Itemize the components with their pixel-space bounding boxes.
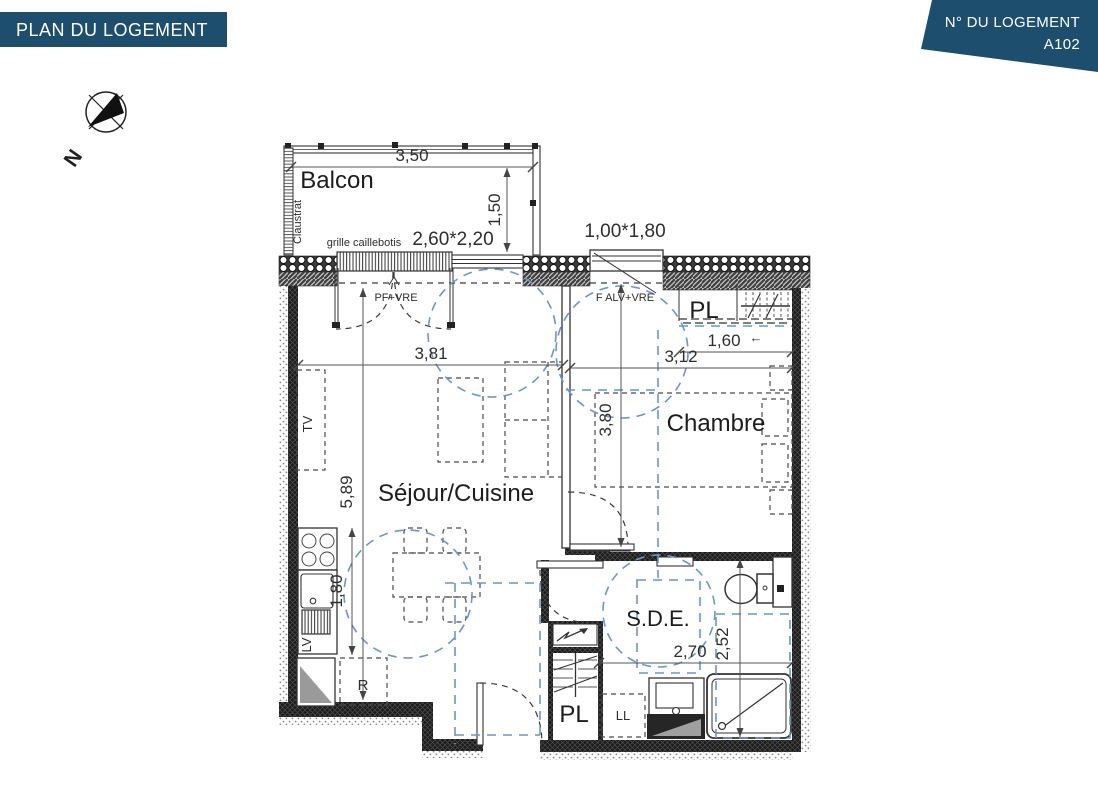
label-fridge: R [358,677,369,694]
label-grille-caillebotis: grille caillebotis [327,237,402,249]
label-window-balcony-size: 2,60*2,20 [412,229,493,250]
wall-bathroom-top [595,552,793,561]
floor-plan-svg: Balcon Séjour/Cuisine Chambre S.D.E. PL … [0,0,1098,800]
wall-top-honeycomb-left [279,256,337,272]
label-claustra: Claustrat [292,200,304,244]
banner-right-line2: A102 [1044,36,1080,53]
kitchen-faucet [310,598,316,604]
chair [404,597,427,622]
wall-bottom-right [540,740,793,752]
dining-table [393,553,480,597]
label-tv: TV [300,415,315,432]
dim-living-length [360,288,367,700]
toilet [725,574,773,604]
wall-bedroom-partition [562,286,570,548]
pillow [762,444,788,482]
wall-right-insulation [801,288,811,752]
duct-right-wall [773,557,792,607]
dim-bedroom-length [618,284,625,547]
label-pf-vre: PF+VRE [374,292,417,304]
pillow [762,399,788,436]
room-label-pl-bottom: PL [559,701,588,728]
nightstand [770,490,792,514]
chair [404,528,427,553]
compass-north-label: N [60,145,88,171]
room-label-pl-entry: PL [689,297,718,324]
dim-label-bedroom-length: 3,80 [596,403,615,436]
nightstand [770,366,792,390]
room-label-sejour: Séjour/Cuisine [378,480,534,507]
bed [595,393,792,487]
label-f-alv-vre: F ALV+VRE [596,292,654,304]
dim-balcony-depth [504,168,511,252]
shower-drain [719,723,726,730]
doors [336,272,634,745]
floor-plan-page: Balcon Séjour/Cuisine Chambre S.D.E. PL … [0,0,1098,800]
kitchen-fixtures [297,528,387,706]
wall-step-insulation [422,751,483,758]
hanging-rod [741,292,790,318]
windows [332,250,663,328]
duct-right-mark [777,585,784,592]
sofa [505,362,562,477]
wall-bottom-left-insulation [279,717,433,725]
dim-label-balcony-width: 3,50 [395,146,428,165]
shower [707,674,791,738]
dim-label-bedroom-width: 3,12 [664,347,697,366]
banner-left-text: PLAN DU LOGEMENT [16,20,208,40]
water-heater-shelves [553,653,597,697]
dim-label-closet-width: 1,60 [707,331,740,350]
closet-direction-arrow: ← [750,330,763,345]
coffee-table [438,378,483,462]
bathroom-door-leaf [537,561,603,568]
wall-top-honeycomb-mid [523,256,590,272]
wall-bottom-right-insulation [540,752,793,760]
wall-left-insulation [279,286,288,706]
accessibility-corridor [445,583,540,744]
wall-hall [541,560,549,623]
compass-needle [88,93,124,127]
dining-chairs [404,528,466,622]
dim-label-living-width: 3,81 [414,344,447,363]
wall-step-horizontal [422,739,483,751]
label-window-bedroom-size: 1,00*1,80 [584,221,665,242]
bathroom-door-rail [570,544,634,550]
dim-label-living-length: 5,89 [337,475,356,508]
banner-right-line1: N° DU LOGEMENT [945,14,1080,31]
dim-label-bathroom-width: 2,70 [673,642,706,661]
dim-label-bathroom-length: 2,52 [713,627,732,660]
compass: N [60,92,126,171]
room-label-sde: S.D.E. [626,606,690,631]
dim-label-kitchen-length: 1,80 [327,574,346,607]
room-label-chambre: Chambre [667,410,766,437]
accessibility-circle-living [428,269,556,397]
wall-top-honeycomb-right [663,256,810,272]
room-label-balcon: Balcon [300,167,373,194]
kitchen-drainboard [302,610,330,634]
label-lv: LV [299,637,314,652]
washbasin [647,678,705,739]
wall-top-hatch-mid [523,272,590,286]
wall-top-hatch-left [279,272,337,286]
balcony-door-shutter [337,252,452,271]
label-washing-machine: LL [616,708,630,723]
dim-kitchen-length [349,528,356,655]
duct-bathroom-wall [657,557,693,566]
electrical-box [553,624,597,645]
dim-label-balcony-depth: 1,50 [485,193,504,226]
wall-left [288,286,298,706]
balcony-window-fixed [452,255,523,268]
banners: PLAN DU LOGEMENT N° DU LOGEMENT A102 [0,0,1098,72]
wall-right [792,288,801,752]
